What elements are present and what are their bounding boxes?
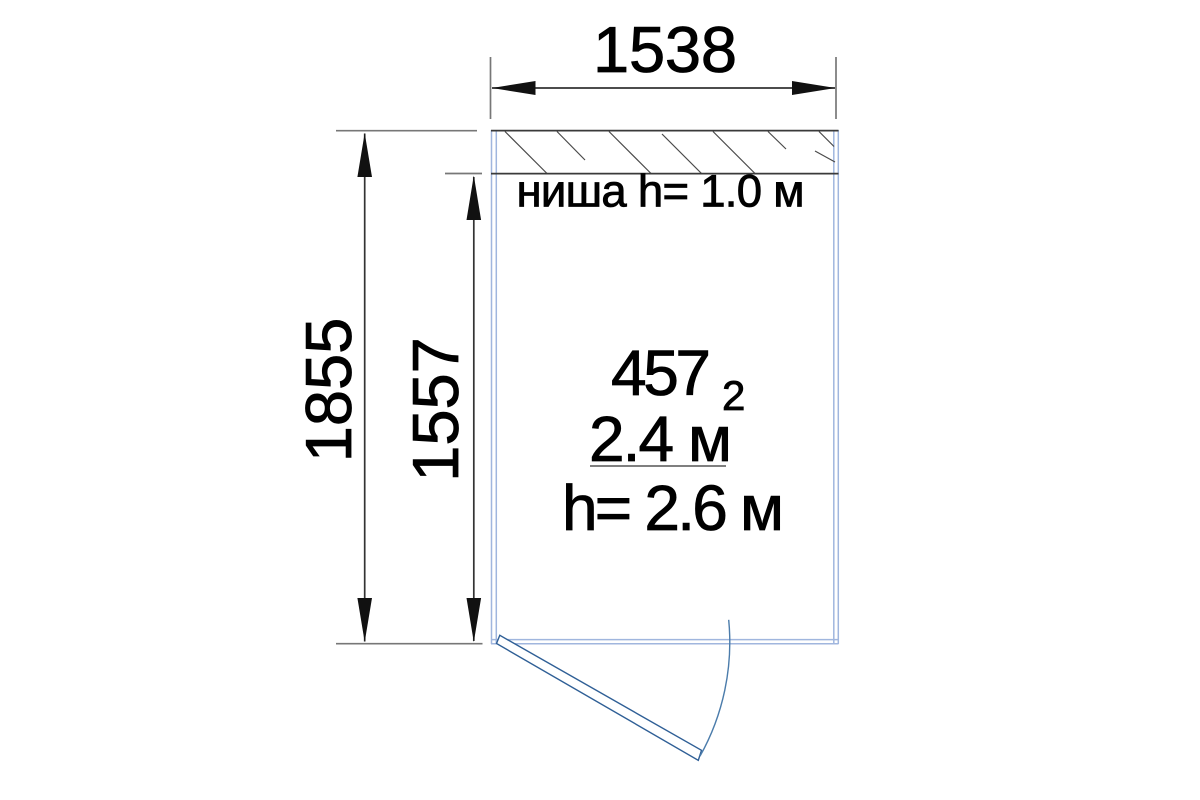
svg-text:2.4 м: 2.4 м xyxy=(589,403,732,475)
svg-text:1557: 1557 xyxy=(399,337,472,482)
svg-text:h= 2.6 м: h= 2.6 м xyxy=(562,472,784,544)
svg-text:ниша h= 1.0 м: ниша h= 1.0 м xyxy=(517,165,805,216)
svg-text:1855: 1855 xyxy=(292,318,365,463)
svg-text:457: 457 xyxy=(611,337,711,409)
svg-text:1538: 1538 xyxy=(593,13,737,86)
